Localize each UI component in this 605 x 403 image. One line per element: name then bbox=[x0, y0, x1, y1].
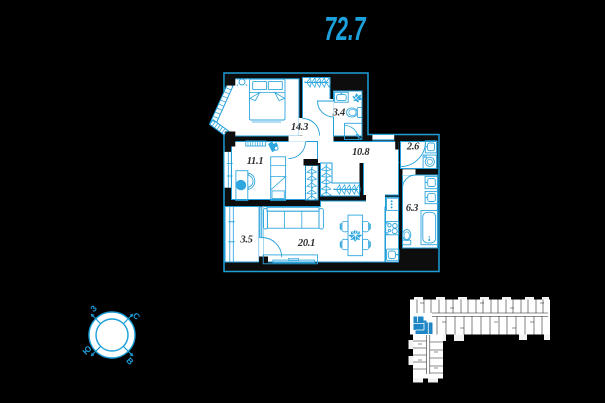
svg-text:2.6: 2.6 bbox=[406, 141, 420, 152]
svg-text:11.1: 11.1 bbox=[247, 156, 264, 167]
svg-text:14.3: 14.3 bbox=[291, 122, 308, 133]
svg-text:72.7: 72.7 bbox=[325, 10, 367, 47]
svg-text:3.4: 3.4 bbox=[332, 107, 345, 118]
svg-text:3.5: 3.5 bbox=[239, 234, 252, 245]
svg-text:20.1: 20.1 bbox=[297, 238, 315, 249]
svg-text:10.8: 10.8 bbox=[352, 147, 370, 158]
svg-text:6.3: 6.3 bbox=[406, 203, 418, 214]
